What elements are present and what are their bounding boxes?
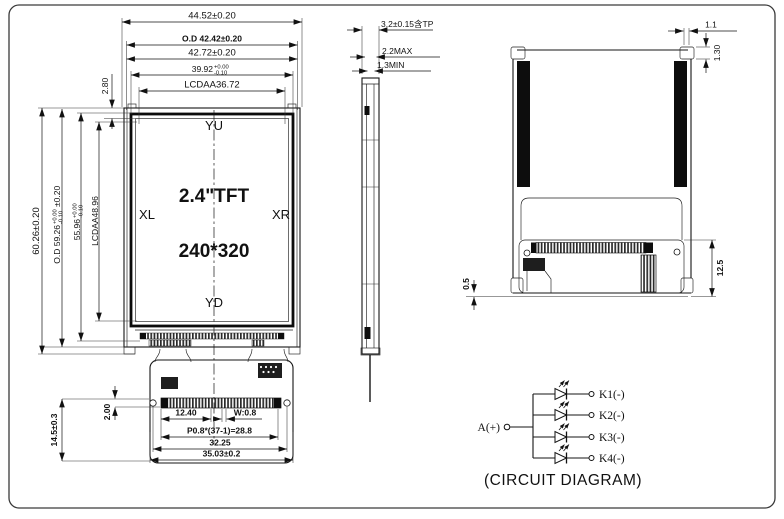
marker-yd: YD bbox=[205, 295, 223, 310]
cathode-label-k3: K3(-) bbox=[599, 432, 625, 444]
dim-total-width: 44.52±0.20 bbox=[188, 11, 235, 22]
back-fold-strip bbox=[641, 255, 656, 292]
dim-fpc-protrusion: 0.5 bbox=[461, 278, 471, 290]
dim-min-thickness: 1.3MIN bbox=[377, 60, 404, 70]
dim-tab-width: 1.1 bbox=[705, 20, 717, 30]
dim-hole-span: 32.25 bbox=[209, 438, 231, 448]
marker-xr: XR bbox=[272, 207, 290, 222]
marker-yu: YU bbox=[205, 118, 223, 133]
svg-text:39.92: 39.92 bbox=[192, 64, 214, 74]
anode-label: A(+) bbox=[478, 422, 501, 434]
fpc-hole-right bbox=[284, 400, 290, 406]
lcd-outline-drawing: YU XL XR YD 2.4"TFT 240*320 44.52±0.20 O… bbox=[0, 0, 784, 519]
dim-aa-width: LCDAA36.72 bbox=[184, 80, 239, 91]
cathode-label-k1: K1(-) bbox=[599, 389, 625, 401]
dim-hole-offset: 2.00 bbox=[102, 403, 112, 420]
svg-text:55.96: 55.96 bbox=[72, 219, 82, 241]
svg-text:-0.10: -0.10 bbox=[214, 71, 227, 77]
fpc-hole-left bbox=[150, 400, 156, 406]
dim-total-height: 60.26±0.20 bbox=[31, 207, 42, 254]
back-connector-block bbox=[523, 258, 545, 271]
back-hole-right bbox=[674, 249, 680, 255]
display-resolution-label: 240*320 bbox=[179, 241, 250, 262]
dim-top-margin: 2.80 bbox=[100, 77, 110, 94]
dim-od-width: O.D 42.42±0.20 bbox=[182, 34, 242, 44]
back-tape-left bbox=[517, 61, 530, 187]
dim-aa-height: LCDAA48.96 bbox=[90, 196, 100, 246]
dim-fpc-width: 35.03±0.2 bbox=[203, 449, 241, 459]
circuit-caption: (CIRCUIT DIAGRAM) bbox=[484, 472, 642, 489]
display-type-label: 2.4"TFT bbox=[179, 186, 250, 207]
svg-text:-0.10: -0.10 bbox=[59, 211, 65, 224]
svg-text:O.D 59.26: O.D 59.26 bbox=[52, 225, 62, 264]
dim-tab-height: 1.30 bbox=[712, 44, 722, 61]
driver-ic-strip bbox=[140, 333, 284, 339]
dim-pin-pitch: P0.8*(37-1)=28.8 bbox=[187, 426, 252, 436]
dim-thickness: 3.2±0.15含TP bbox=[381, 19, 434, 29]
dim-fpc-zone-height: 12.5 bbox=[715, 259, 725, 276]
bonding-pad-left bbox=[149, 340, 191, 346]
marker-xl: XL bbox=[139, 207, 155, 222]
back-hole-left bbox=[524, 250, 530, 256]
svg-text:±0.20: ±0.20 bbox=[52, 186, 62, 207]
dim-fpc-lead: 12.40 bbox=[175, 408, 197, 418]
fpc-contact-pins bbox=[161, 398, 281, 408]
bonding-pad-right bbox=[252, 340, 264, 346]
dim-max-thickness: 2.2MAX bbox=[382, 46, 413, 56]
fpc-stiffener-left bbox=[161, 377, 178, 389]
back-contact-pins bbox=[536, 243, 646, 254]
fpc-component-right bbox=[258, 363, 282, 378]
dim-frame-width: 42.72±0.20 bbox=[188, 48, 235, 59]
anode-terminal bbox=[504, 424, 510, 430]
cathode-label-k2: K2(-) bbox=[599, 410, 625, 422]
back-tape-right bbox=[674, 61, 687, 187]
svg-text:-0.10: -0.10 bbox=[79, 205, 85, 218]
dim-fpc-length: 14.5±0.3 bbox=[49, 413, 59, 446]
cathode-label-k4: K4(-) bbox=[599, 453, 625, 465]
dim-pin-width: W:0.8 bbox=[234, 408, 257, 418]
